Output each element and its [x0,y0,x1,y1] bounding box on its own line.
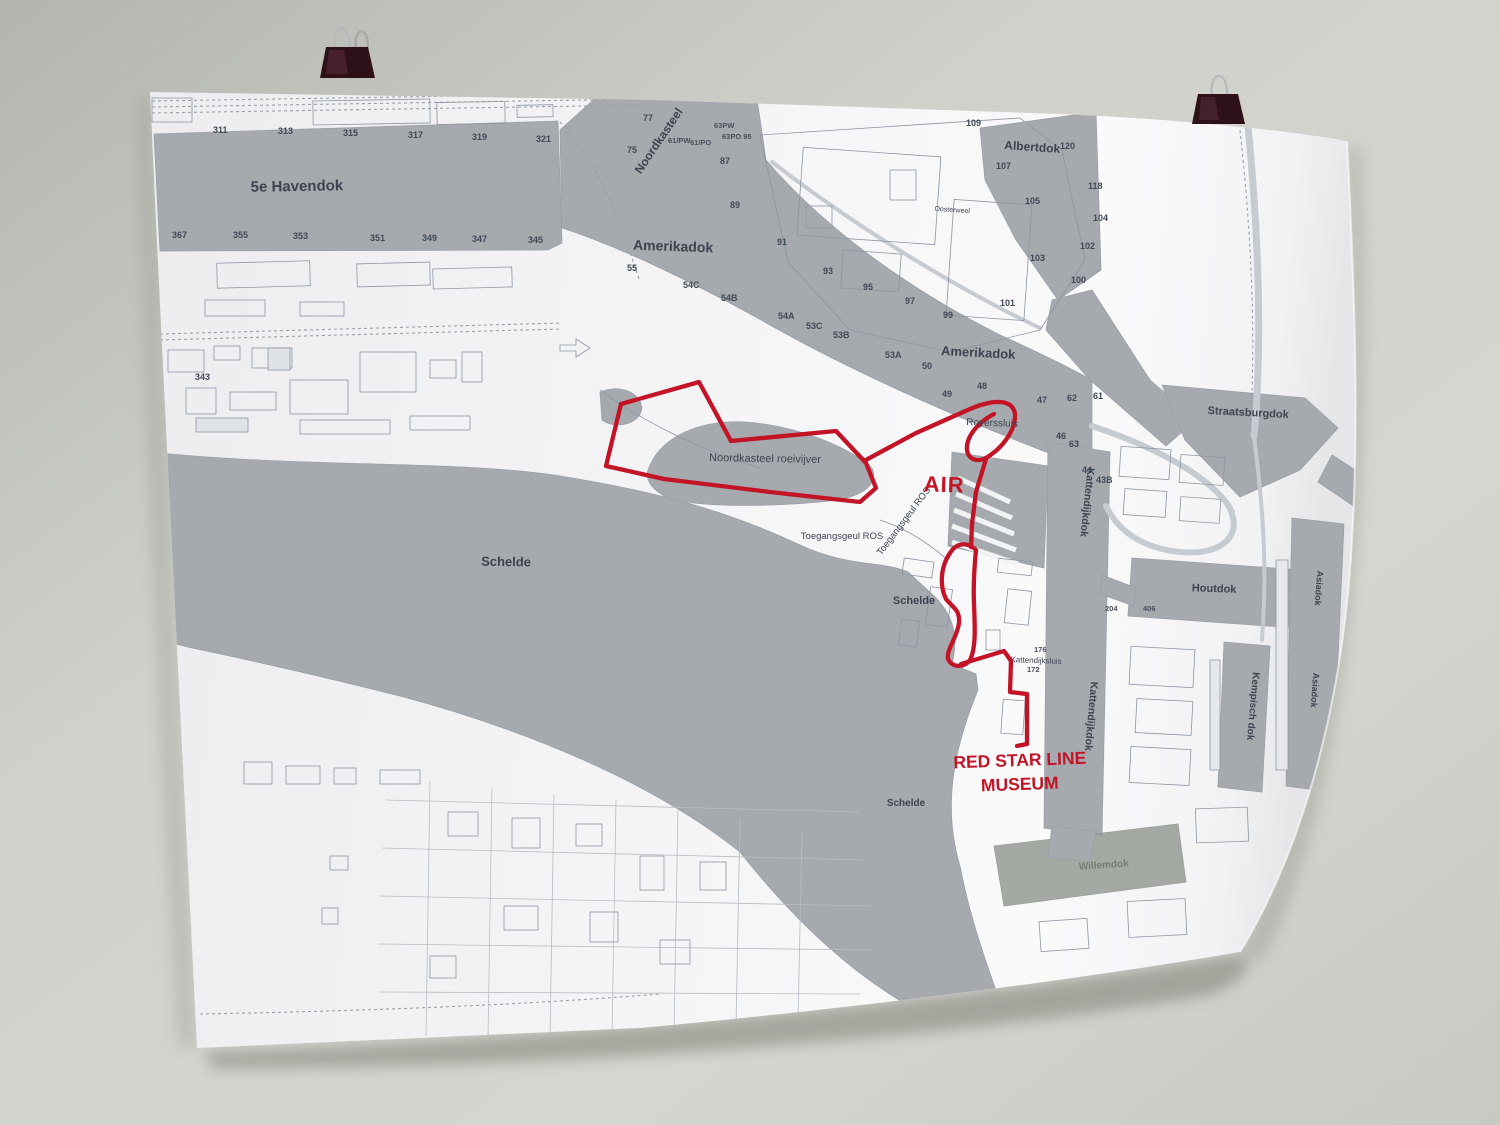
berth-number: 97 [905,296,915,306]
water-kattendijk-canal [1048,826,1096,862]
berth-number: 355 [233,230,248,240]
berth-number: 89 [730,200,740,210]
berth-number: 49 [942,389,952,399]
label-houtdok: Houtdok [1192,582,1238,596]
berth-number: 107 [996,161,1011,171]
berth-number: 313 [278,126,293,136]
water-5e-havendok [154,121,562,251]
label-schelde-2: Schelde [893,595,935,607]
berth-number: 54A [778,311,795,321]
berth-number: 75 [627,145,637,155]
berth-number: 347 [472,234,487,244]
berth-number: 343 [195,372,210,382]
berth-number: 63PO 95 [722,132,752,141]
berth-number: 353 [293,231,308,241]
berth-number: 349 [422,233,437,243]
berth-number: 109 [966,118,981,128]
berth-number: 99 [943,310,953,320]
berth-number: 311 [213,125,228,135]
berth-number: 46 [1056,431,1066,441]
label-toegangsgeul-h: Toegangsgeul ROS [801,531,883,542]
water-kempisch-dok [1218,642,1270,792]
berth-number: 53B [833,330,850,340]
berth-number: 54B [721,293,738,303]
berth-number: 100 [1071,275,1086,285]
label-royerssluis: Royerssluis [966,417,1018,430]
label-schelde-3: Schelde [887,798,926,809]
berth-number: 93 [823,266,833,276]
berth-number: 61 [1093,391,1103,401]
berth-number: 62 [1067,393,1077,403]
berth-number: 345 [528,235,543,245]
berth-number: 63PW [714,121,735,130]
berth-number: 103 [1030,253,1045,263]
berth-number: 118 [1088,181,1103,191]
berth-number: 55 [627,263,637,273]
berth-number: 54C [683,280,700,290]
berth-number: 43B [1096,475,1113,485]
berth-number: 321 [536,134,551,144]
berth-number: 102 [1080,241,1095,251]
label-5e-havendok: 5e Havendok [251,177,344,196]
berth-number: 104 [1093,213,1108,223]
berth-number: 77 [643,113,653,123]
berth-number: 101 [1000,298,1015,308]
berth-number: 351 [370,233,385,243]
berth-number: 61/PO [690,138,711,147]
berth-number: 53C [806,321,823,331]
berth-number: 47 [1037,395,1047,405]
label-amerikadok-upper: Amerikadok [633,237,714,256]
berth-number: 319 [472,132,487,142]
berth-number: 44 [1082,465,1092,475]
berth-number: 63 [1069,439,1079,449]
berth-number: 61/PW [668,136,691,145]
photo-of-map-poster: 5e Havendok Amerikadok Amerikadok Albert… [0,0,1500,1125]
berth-number: 48 [977,381,987,391]
scene-svg: 5e Havendok Amerikadok Amerikadok Albert… [0,0,1500,1125]
berth-number: 91 [777,237,787,247]
label-museum: MUSEUM [981,773,1059,796]
berth-number: 95 [863,282,873,292]
berth-number: 317 [408,130,423,140]
berth-number: 315 [343,128,358,138]
berth-number: 172 [1027,665,1040,674]
berth-number: 176 [1034,645,1047,654]
berth-number: 87 [720,156,730,166]
berth-number: 105 [1025,196,1040,206]
berth-number: 120 [1060,141,1075,151]
berth-number: 367 [172,230,187,240]
berth-number: 204 [1105,604,1118,613]
berth-number: 53A [885,350,902,360]
berth-number: 406 [1143,604,1156,613]
berth-number: 50 [922,361,932,371]
label-schelde-1: Schelde [481,554,531,570]
label-roeivijver: Noordkasteel roeivijver [709,452,821,466]
label-air: AIR [923,471,965,497]
